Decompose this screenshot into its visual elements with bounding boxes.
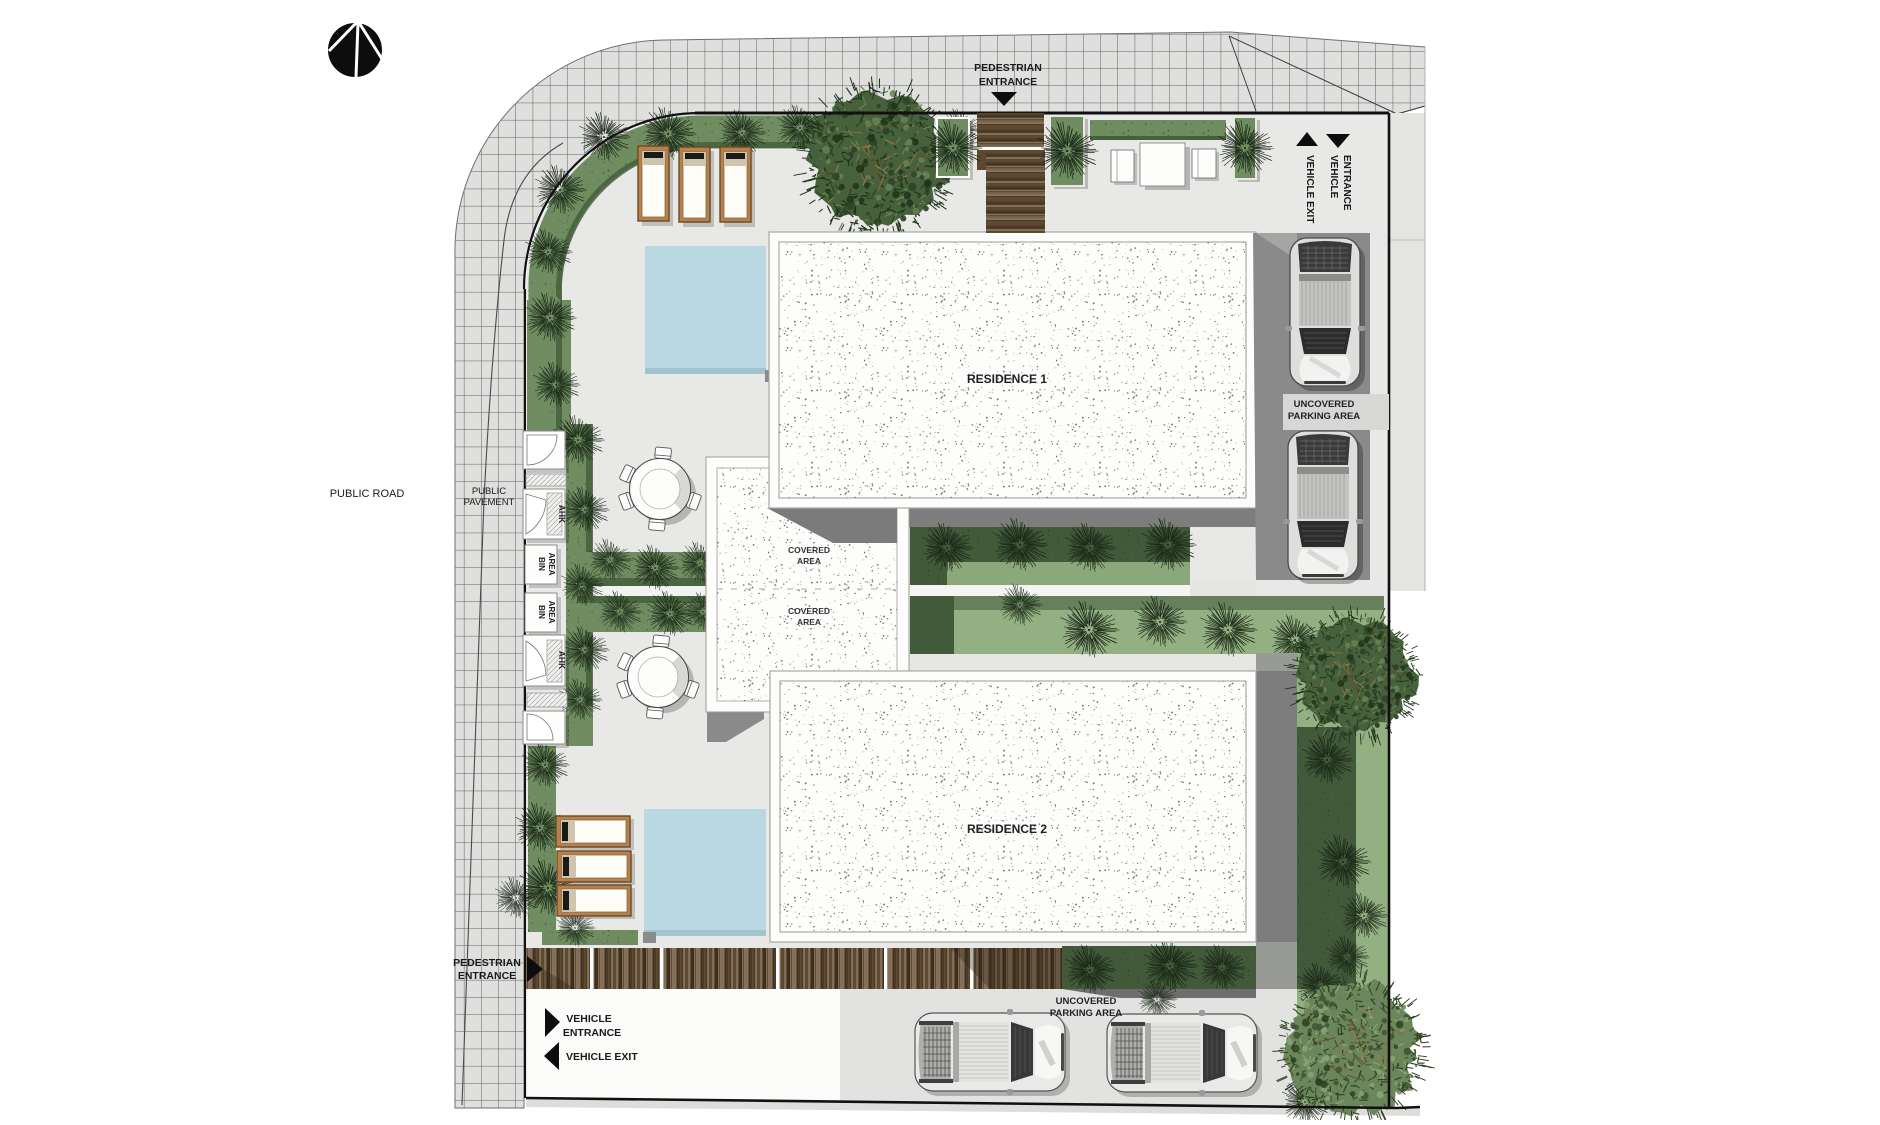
svg-text:UNCOVERED: UNCOVERED [1294,399,1355,410]
svg-text:PEDESTRIAN: PEDESTRIAN [974,62,1042,74]
svg-text:ENTRANCE: ENTRANCE [458,970,516,982]
svg-text:AREA: AREA [797,556,821,566]
svg-text:UNCOVERED: UNCOVERED [1056,996,1117,1007]
svg-text:ENTRANCE: ENTRANCE [563,1027,621,1039]
svg-text:RESIDENCE 2: RESIDENCE 2 [967,822,1047,836]
svg-text:BIN: BIN [537,557,546,571]
svg-text:AHK: AHK [557,651,567,670]
svg-text:PUBLIC: PUBLIC [472,486,506,497]
svg-text:ENTRANCE: ENTRANCE [1341,155,1352,211]
svg-text:AREA: AREA [547,553,556,576]
svg-text:AREA: AREA [547,601,556,624]
svg-text:AREA: AREA [797,617,821,627]
svg-text:PARKING AREA: PARKING AREA [1050,1008,1122,1019]
svg-text:PARKING AREA: PARKING AREA [1288,411,1360,422]
svg-text:VEHICLE EXIT: VEHICLE EXIT [1304,155,1315,223]
svg-text:RESIDENCE 1: RESIDENCE 1 [967,372,1047,386]
svg-text:COVERED: COVERED [788,606,830,616]
svg-text:AHK: AHK [557,505,567,524]
svg-text:PUBLIC ROAD: PUBLIC ROAD [330,488,405,500]
svg-text:BIN: BIN [537,605,546,619]
svg-text:PEDESTRIAN: PEDESTRIAN [453,957,521,969]
svg-text:VEHICLE EXIT: VEHICLE EXIT [566,1051,638,1063]
svg-text:PAVEMENT: PAVEMENT [464,497,515,508]
svg-text:VEHICLE: VEHICLE [1328,155,1339,199]
svg-text:ENTRANCE: ENTRANCE [979,76,1037,88]
svg-text:VEHICLE: VEHICLE [566,1013,612,1025]
svg-text:COVERED: COVERED [788,545,830,555]
